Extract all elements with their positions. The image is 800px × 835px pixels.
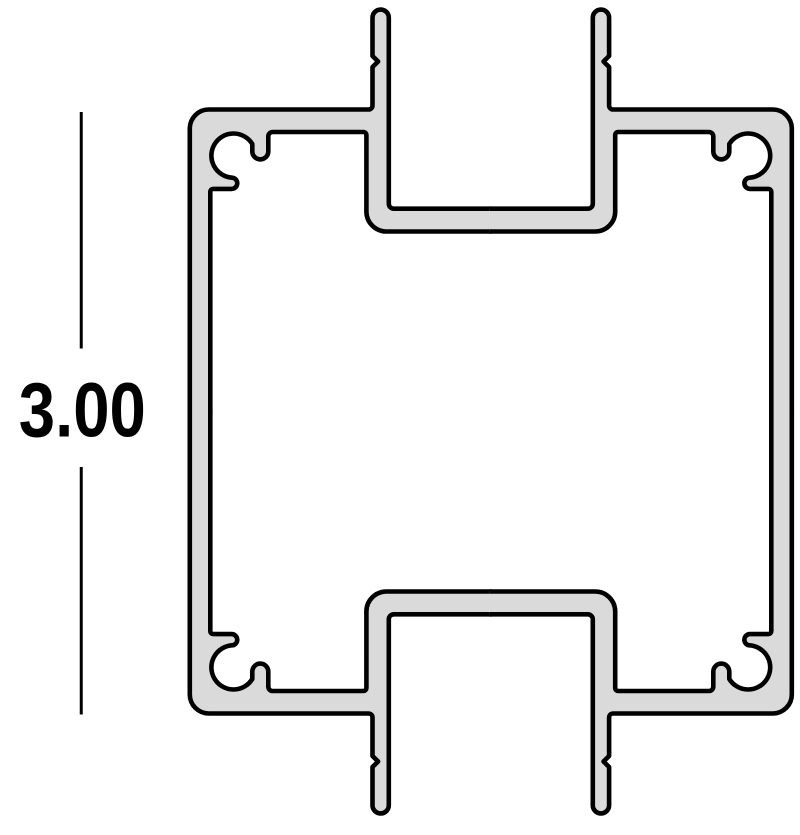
svg-text:3.00: 3.00 — [19, 368, 146, 453]
